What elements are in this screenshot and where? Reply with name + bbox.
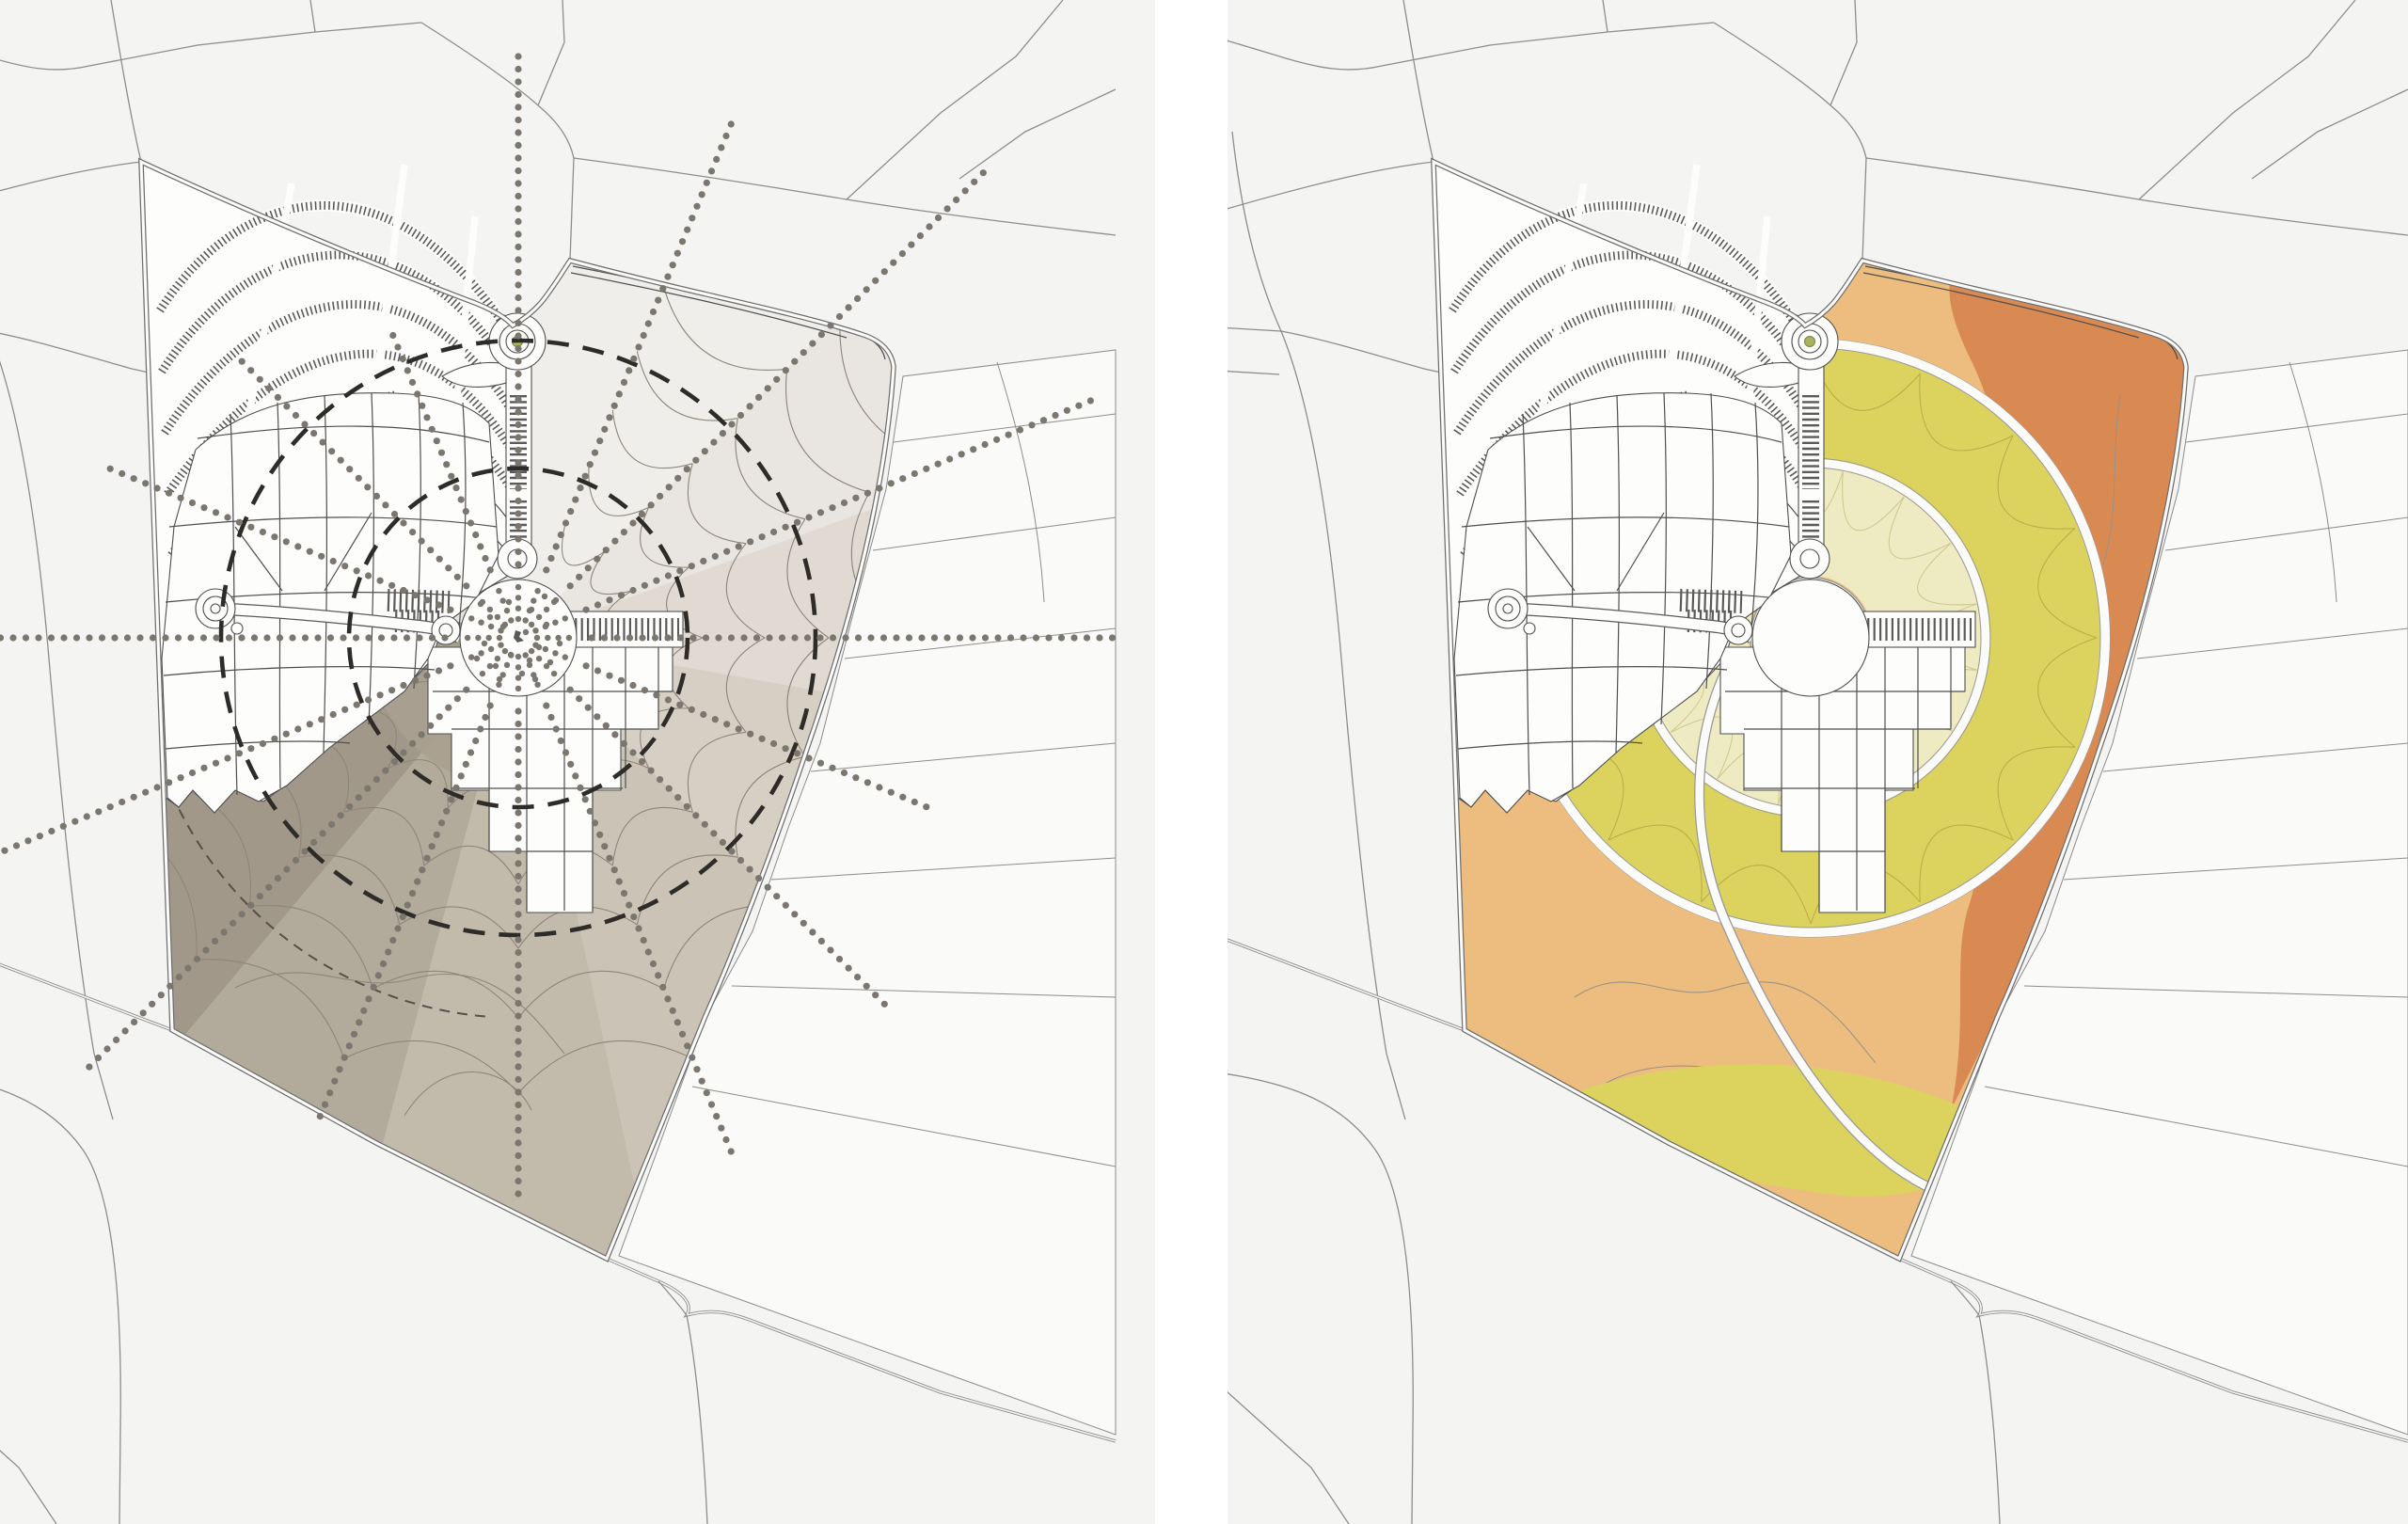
- left-panel-radial-analysis: [0, 0, 1155, 1524]
- right-panel-proximity-gradient: [1228, 0, 2408, 1524]
- diagram-stage: [0, 0, 2408, 1524]
